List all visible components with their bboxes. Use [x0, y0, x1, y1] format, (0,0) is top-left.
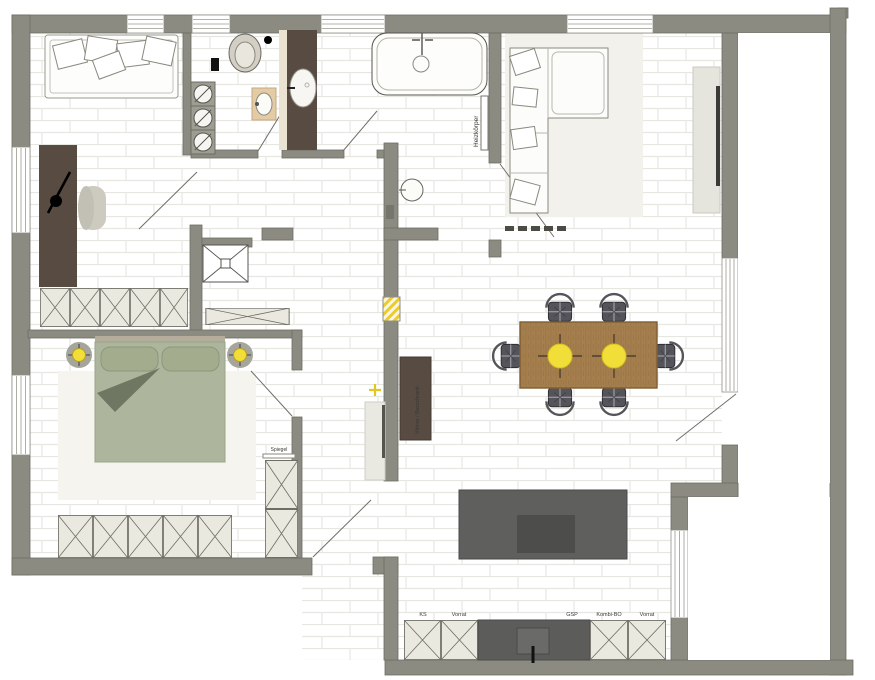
desk-chair-back	[78, 186, 94, 230]
dash	[518, 226, 527, 231]
wall-hall-east-2	[384, 321, 398, 481]
label-gsp: GSP	[566, 612, 578, 618]
nightstand-left	[66, 342, 92, 368]
shower-drain	[221, 259, 230, 268]
window-wc	[192, 15, 230, 33]
pendant-light	[548, 344, 572, 368]
pillow	[512, 87, 538, 107]
label-vorrat-1: Vorrat	[452, 612, 467, 618]
bed-pillow	[162, 347, 219, 371]
desk-lamp	[50, 195, 62, 207]
terrace-south	[688, 497, 830, 660]
dash	[544, 226, 553, 231]
fuse-box	[383, 297, 400, 321]
hall-sideboard-edge	[382, 405, 385, 458]
mirror	[263, 454, 295, 458]
cabinet-kombi	[590, 620, 627, 659]
wardrobe-section	[128, 515, 162, 557]
wall-bottom-left	[12, 558, 312, 575]
wall-bottom	[385, 660, 853, 675]
wardrobe-section	[265, 509, 297, 557]
window-office-west	[12, 147, 30, 233]
pendant-light	[602, 344, 626, 368]
tv	[716, 86, 720, 186]
pillow	[511, 126, 538, 149]
floor-plan-page: Heizkörper	[0, 0, 875, 680]
tv-sideboard	[693, 67, 720, 213]
dash	[505, 226, 514, 231]
window-kitchen-east	[671, 530, 688, 618]
wardrobe-section	[163, 515, 197, 557]
nightstand-lamp	[73, 349, 86, 362]
wall-living-east-1	[722, 33, 738, 258]
wardrobe-section	[40, 288, 69, 326]
window-living-north	[567, 15, 653, 33]
dresser	[206, 308, 289, 325]
wall-left	[12, 15, 30, 575]
wardrobe-section	[265, 460, 297, 508]
wall-office-east	[183, 33, 191, 155]
dash	[557, 226, 566, 231]
window-bedroom-west	[12, 375, 30, 455]
terrace-east	[738, 33, 830, 483]
wc-sink-tap	[255, 102, 259, 106]
radiator-label: Heizkörper	[473, 115, 480, 147]
small-radiator	[386, 205, 394, 219]
display-cabinet-label: Vitrine / Barschrank	[415, 386, 421, 434]
cooktop	[517, 515, 575, 553]
washer-stack	[191, 82, 215, 154]
wall-nook-east	[262, 228, 293, 240]
vanity-side-panel	[279, 30, 287, 150]
bed-headboard	[95, 336, 225, 342]
wardrobe-section	[198, 515, 231, 557]
wardrobe-section	[58, 515, 92, 557]
wall-kitchen-step	[671, 483, 738, 497]
bed-pillow	[101, 347, 158, 371]
cabinet-vorrat-1	[441, 620, 477, 659]
drain-dot	[264, 36, 272, 44]
wardrobe-section	[100, 288, 129, 326]
wall-living-west-1	[489, 33, 501, 163]
wardrobe-section	[160, 288, 187, 326]
wardrobe-section	[130, 288, 159, 326]
label-ks: KS	[419, 612, 427, 618]
radiator	[481, 96, 488, 150]
dash	[531, 226, 540, 231]
wall-hall-east-3	[384, 557, 398, 660]
window-living-east	[722, 258, 738, 392]
wall-kitchen-east-1	[671, 497, 688, 530]
nightstand-lamp	[234, 349, 247, 362]
desk	[39, 145, 77, 287]
nightstand-right	[227, 342, 253, 368]
cabinet-vorrat-2	[628, 620, 665, 659]
wardrobe-section	[93, 515, 127, 557]
wall-living-west-2	[489, 240, 501, 257]
wardrobe-section	[70, 288, 99, 326]
window-office	[127, 15, 164, 33]
label-kombi: Kombi-BO	[596, 612, 622, 618]
label-vorrat-2: Vorrat	[640, 612, 655, 618]
window-bath	[321, 15, 385, 33]
wall-shower-south	[384, 228, 438, 240]
wall-kitchen-east-2	[671, 618, 688, 660]
shower	[203, 245, 248, 282]
cabinet-ks	[404, 620, 440, 659]
wall-bedroom-east-1	[292, 330, 302, 370]
floor-plan: Heizkörper	[0, 0, 875, 680]
mirror-label: Spiegel	[271, 447, 288, 453]
dining-table	[520, 322, 657, 388]
cistern-control	[211, 58, 219, 71]
wall-right	[830, 8, 846, 675]
wall-nook-west	[190, 225, 202, 335]
wall-bath-south-2	[282, 150, 344, 158]
toilet-bowl	[235, 42, 255, 68]
